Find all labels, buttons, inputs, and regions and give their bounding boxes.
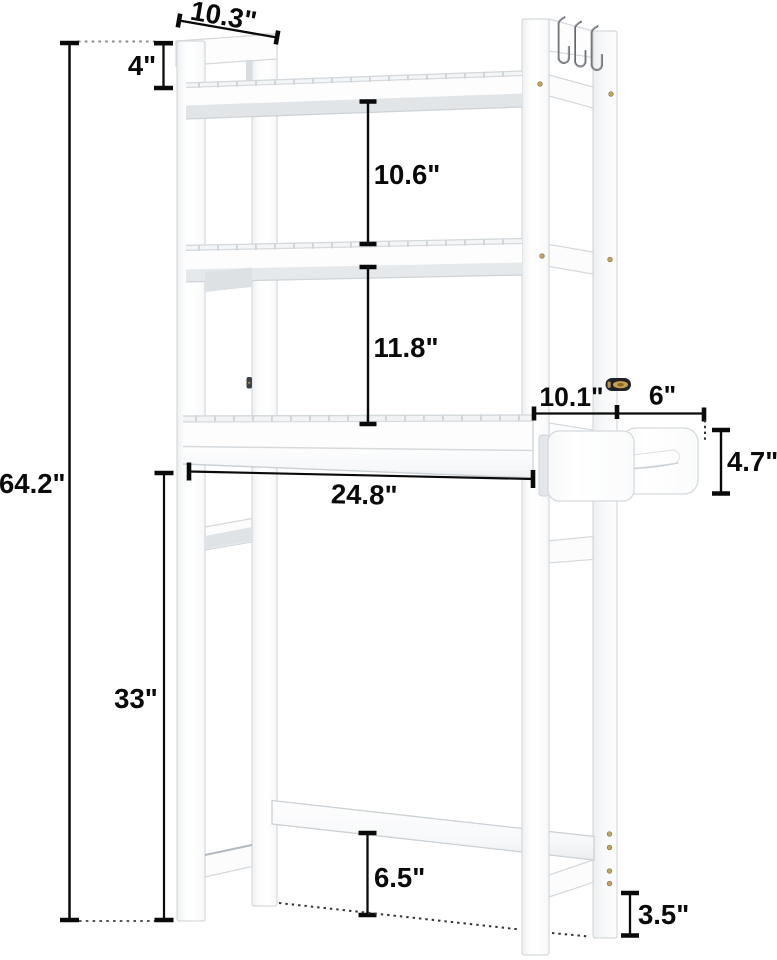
svg-text:24.8": 24.8" [331,478,398,511]
svg-text:64.2": 64.2" [0,468,66,499]
svg-text:11.8": 11.8" [373,332,438,363]
svg-text:6.5": 6.5" [374,862,425,893]
svg-text:4.7": 4.7" [727,446,777,477]
svg-text:6": 6" [649,381,676,411]
svg-text:33": 33" [114,683,158,714]
svg-text:3.5": 3.5" [638,899,689,930]
svg-text:4": 4" [128,50,156,81]
svg-text:10.3": 10.3" [188,0,259,37]
svg-text:10.6": 10.6" [374,159,441,190]
svg-text:10.1": 10.1" [539,382,603,412]
